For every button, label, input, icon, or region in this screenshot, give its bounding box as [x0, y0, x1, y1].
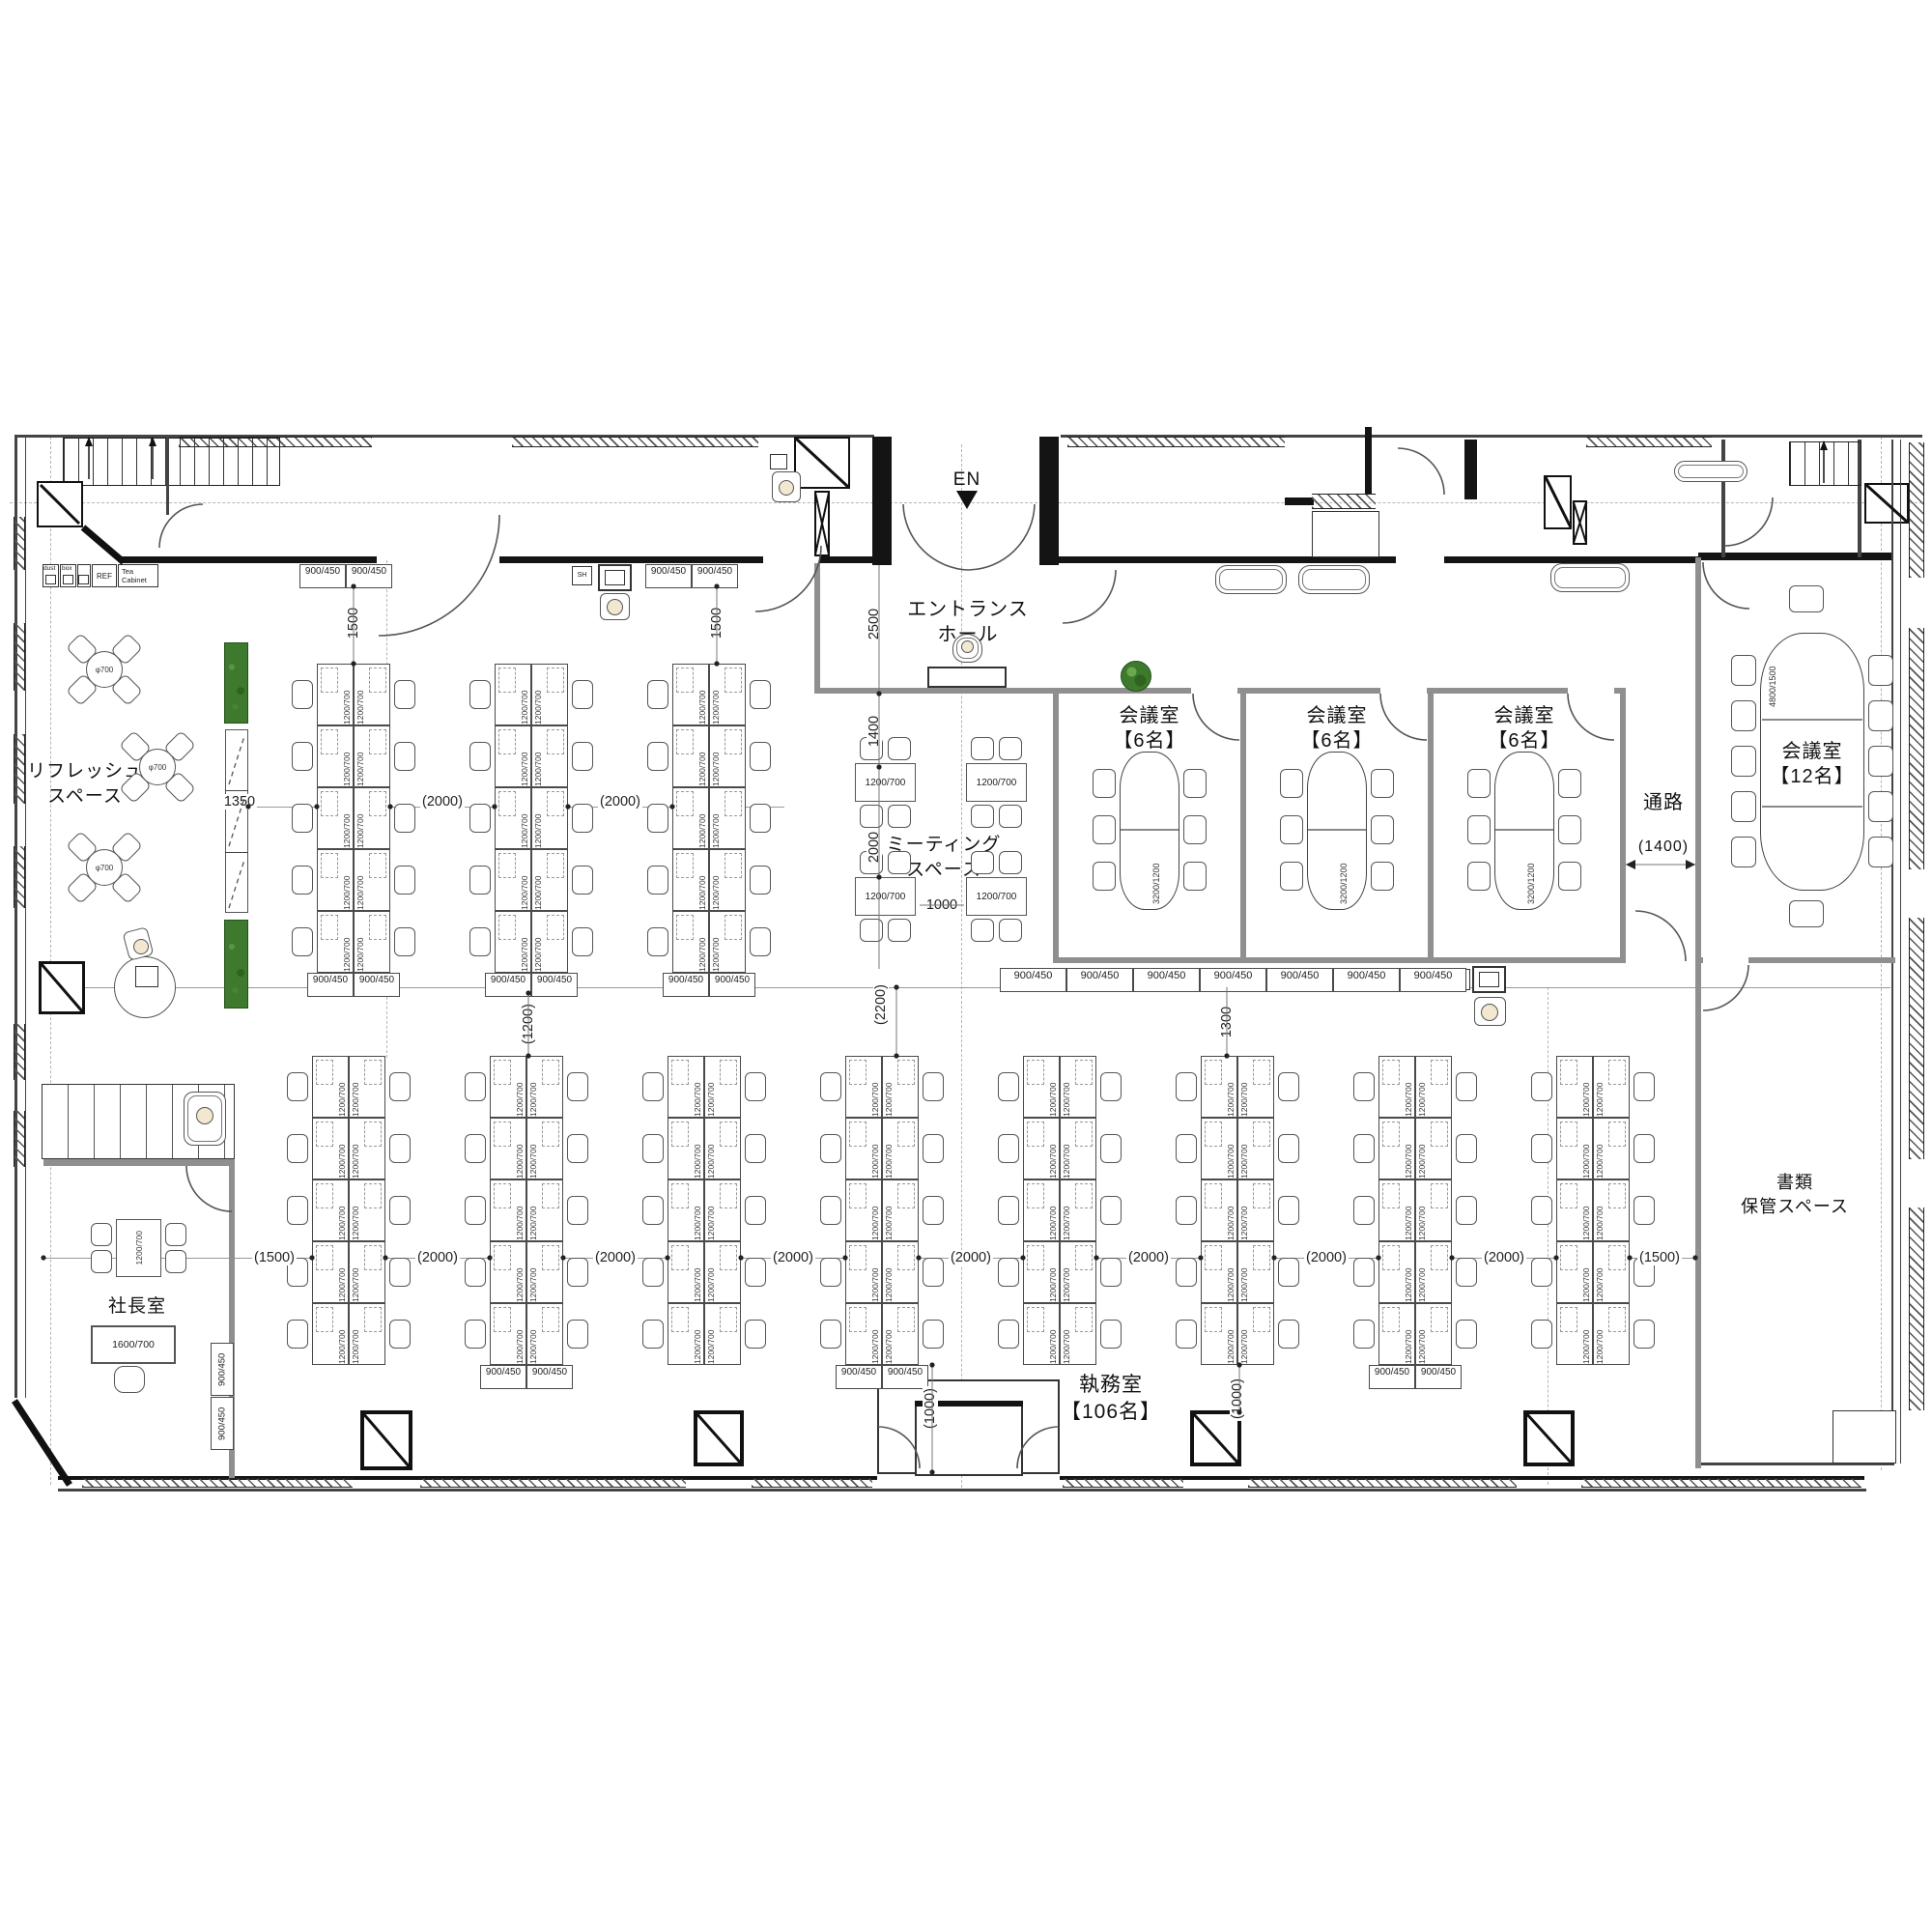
desk-size-label: 1200/700	[693, 1057, 702, 1117]
meeting-chair	[1280, 862, 1303, 891]
desk-equipment-zone	[321, 915, 338, 940]
dimension-label: (2000)	[593, 1250, 638, 1265]
office-chair	[1176, 1320, 1197, 1349]
office-desk: 1200/700	[709, 849, 746, 911]
refrigerator: REF	[92, 564, 117, 587]
office-desk: 1200/700	[1023, 1056, 1060, 1118]
president-meeting-table: 1200/700	[116, 1219, 161, 1277]
desk-equipment-zone	[720, 1183, 737, 1208]
office-desk: 1200/700	[672, 664, 709, 725]
office-chair	[465, 1258, 486, 1287]
meeting-chair	[1868, 746, 1893, 777]
dimension-label: 1350	[222, 794, 257, 810]
window-band-right-hatch	[1909, 442, 1924, 578]
office-chair	[923, 1196, 944, 1225]
office-chair	[820, 1072, 841, 1101]
desk-size-label: 1200/700	[520, 788, 529, 848]
desk-size-label: 1200/700	[870, 1057, 880, 1117]
meeting-room-wall	[1428, 688, 1434, 963]
desk-size-label: 1200/700	[342, 850, 352, 910]
office-desk: 1200/700	[349, 1179, 385, 1241]
meeting-chair	[888, 805, 911, 828]
office-desk: 1200/700	[1415, 1179, 1452, 1241]
office-chair	[750, 680, 771, 709]
desk-equipment-zone	[316, 1183, 333, 1208]
desk-equipment-zone	[897, 1060, 915, 1085]
office-desk: 1200/700	[1237, 1179, 1274, 1241]
office-desk: 1200/700	[312, 1056, 349, 1118]
desk-equipment-zone	[1205, 1122, 1222, 1147]
office-chair	[287, 1196, 308, 1225]
office-room-label: 執務室【106名】	[1029, 1372, 1193, 1426]
office-desk: 1200/700	[882, 1241, 919, 1303]
storage-cabinet: 900/450	[1400, 968, 1466, 992]
desk-equipment-zone	[1431, 1183, 1448, 1208]
desk-equipment-zone	[1431, 1245, 1448, 1270]
desk-size-label: 1200/700	[528, 1304, 538, 1364]
desk-size-label: 1200/700	[1404, 1057, 1413, 1117]
office-chair	[1531, 1258, 1552, 1287]
office-chair	[1353, 1134, 1375, 1163]
office-desk: 1200/700	[668, 1118, 704, 1179]
meeting-chair	[1789, 585, 1824, 612]
desk-equipment-zone	[494, 1245, 511, 1270]
desk-size-label: 1200/700	[706, 1119, 716, 1179]
office-chair	[820, 1134, 841, 1163]
office-desk: 1200/700	[354, 725, 390, 787]
office-desk: 1200/700	[668, 1303, 704, 1365]
desk-equipment-zone	[498, 668, 516, 693]
office-chair	[923, 1258, 944, 1287]
office-desk: 1200/700	[668, 1056, 704, 1118]
office-desk: 1200/700	[1593, 1303, 1630, 1365]
office-chair	[745, 1196, 766, 1225]
desk-equipment-zone	[1253, 1245, 1270, 1270]
office-chair	[1278, 1258, 1299, 1287]
desk-equipment-zone	[542, 1183, 559, 1208]
desk-size-label: 1200/700	[533, 665, 543, 724]
corridor-label: 通路	[1625, 790, 1702, 815]
office-desk: 1200/700	[845, 1303, 882, 1365]
office-desk: 1200/700	[495, 725, 531, 787]
desk-equipment-zone	[547, 915, 564, 940]
office-desk: 1200/700	[1593, 1179, 1630, 1241]
office-desk: 1200/700	[709, 787, 746, 849]
office-chair	[1278, 1320, 1299, 1349]
desk-equipment-zone	[897, 1245, 915, 1270]
office-chair	[465, 1134, 486, 1163]
desk-equipment-zone	[671, 1122, 689, 1147]
storage-cabinet: 900/450	[1333, 968, 1400, 992]
office-chair	[998, 1134, 1019, 1163]
office-desk: 1200/700	[354, 664, 390, 725]
window-band-bottom	[1248, 1478, 1517, 1488]
meeting-chair	[860, 805, 883, 828]
diagonal-corner-wall	[14, 1401, 70, 1485]
inner-wall-top	[499, 556, 763, 563]
desk-size-label: 1200/700	[884, 1242, 894, 1302]
desk-size-label: 1200/700	[1048, 1304, 1058, 1364]
desk-equipment-zone	[498, 729, 516, 754]
office-desk: 1200/700	[531, 849, 568, 911]
office-chair	[647, 927, 668, 956]
office-desk: 1200/700	[317, 787, 354, 849]
desk-size-label: 1200/700	[1239, 1180, 1249, 1240]
desk-size-label: 1200/700	[693, 1304, 702, 1364]
desk-equipment-zone	[724, 853, 742, 878]
office-chair	[642, 1320, 664, 1349]
office-chair	[1176, 1134, 1197, 1163]
meeting-rooms-bottom-wall	[1053, 957, 1626, 963]
president-room-label: 社長室	[79, 1294, 195, 1320]
office-chair	[998, 1072, 1019, 1101]
dimension-label: (2000)	[771, 1250, 815, 1265]
meeting-chair	[1731, 791, 1756, 822]
meeting-chair	[1093, 769, 1116, 798]
partition-panel-divider	[225, 790, 248, 791]
office-chair	[998, 1258, 1019, 1287]
entrance-hall-label: エントランスホール	[891, 597, 1045, 647]
office-desk: 1200/700	[1023, 1241, 1060, 1303]
office-chair	[567, 1072, 588, 1101]
desk-equipment-zone	[1027, 1122, 1044, 1147]
shaft-column	[814, 491, 830, 556]
desk-size-label: 1200/700	[697, 726, 707, 786]
office-desk: 1200/700	[490, 1303, 526, 1365]
desk-size-label: 1200/700	[533, 726, 543, 786]
desk-equipment-zone	[849, 1060, 867, 1085]
desk-size-label: 1200/700	[533, 788, 543, 848]
desk-size-label: 1200/700	[1581, 1119, 1591, 1179]
desk-equipment-zone	[321, 729, 338, 754]
desk-size-label: 1200/700	[1404, 1304, 1413, 1364]
wall-stub	[1464, 440, 1477, 499]
desk-equipment-zone	[1431, 1122, 1448, 1147]
office-desk: 1200/700	[1415, 1303, 1452, 1365]
desk-equipment-zone	[1253, 1307, 1270, 1332]
office-desk: 1200/700	[531, 787, 568, 849]
desk-size-label: 1200/700	[1048, 1119, 1058, 1179]
office-desk: 1200/700	[349, 1118, 385, 1179]
president-chair	[114, 1366, 145, 1393]
office-desk: 1200/700	[709, 911, 746, 973]
office-chair	[1634, 1072, 1655, 1101]
desk-size-label: 1200/700	[1048, 1242, 1058, 1302]
desk-size-label: 1200/700	[528, 1057, 538, 1117]
office-desk: 1200/700	[312, 1118, 349, 1179]
office-desk: 1200/700	[1060, 1303, 1096, 1365]
desk-size-label: 1200/700	[351, 1242, 360, 1302]
office-chair	[1353, 1072, 1375, 1101]
office-desk: 1200/700	[1201, 1241, 1237, 1303]
storage-cabinet: 900/450	[1066, 968, 1133, 992]
storage-cabinet: 900/450	[1000, 968, 1066, 992]
office-desk: 1200/700	[317, 911, 354, 973]
office-chair	[287, 1072, 308, 1101]
office-desk: 1200/700	[1378, 1056, 1415, 1118]
office-desk: 1200/700	[354, 911, 390, 973]
entrance-mark: EN	[933, 468, 1001, 493]
table-item	[135, 966, 158, 987]
office-desk: 1200/700	[526, 1118, 563, 1179]
storage-cabinet: 900/450	[346, 564, 392, 588]
storage-cabinet: 900/450	[531, 973, 578, 997]
desk-size-label: 1200/700	[1062, 1242, 1071, 1302]
meeting-chair	[1371, 862, 1394, 891]
dimension-label: (1000)	[923, 1386, 938, 1431]
desk-size-label: 1200/700	[520, 726, 529, 786]
office-desk: 1200/700	[1593, 1118, 1630, 1179]
office-desk: 1200/700	[526, 1056, 563, 1118]
office-chair	[1456, 1196, 1477, 1225]
desk-equipment-zone	[1205, 1060, 1222, 1085]
desk-size-label: 1200/700	[711, 726, 721, 786]
office-chair	[647, 866, 668, 895]
desk-equipment-zone	[720, 1122, 737, 1147]
window-band-bottom	[752, 1478, 872, 1488]
window-band-bottom	[420, 1478, 686, 1488]
meeting6-table-label: 3200/1200	[1151, 840, 1161, 904]
bench	[1550, 563, 1630, 592]
meeting-chair	[999, 919, 1022, 942]
meeting-chair	[971, 737, 994, 760]
office-desk: 1200/700	[704, 1056, 741, 1118]
office-chair	[745, 1258, 766, 1287]
copier-inner	[1479, 972, 1499, 987]
desk-equipment-zone	[1075, 1122, 1093, 1147]
desk-size-label: 1200/700	[1239, 1057, 1249, 1117]
office-desk: 1200/700	[845, 1056, 882, 1118]
meeting-chair	[1183, 815, 1207, 844]
office-chair	[647, 804, 668, 833]
storage-cabinet: 900/450	[1369, 1365, 1415, 1389]
desk-equipment-zone	[676, 668, 694, 693]
desk-size-label: 1200/700	[870, 1304, 880, 1364]
office-chair	[572, 927, 593, 956]
desk-size-label: 1200/700	[1226, 1304, 1236, 1364]
column-left	[39, 961, 85, 1014]
desk-equipment-zone	[1608, 1183, 1626, 1208]
office-chair	[647, 680, 668, 709]
meeting-chair	[1731, 746, 1756, 777]
meeting-chair	[1558, 769, 1581, 798]
desk-equipment-zone	[494, 1122, 511, 1147]
office-chair	[1634, 1134, 1655, 1163]
desk-equipment-zone	[547, 729, 564, 754]
office-chair	[1456, 1320, 1477, 1349]
storage-cabinet: 900/450	[836, 1365, 882, 1389]
tea-cabinet: TeaCabinet	[118, 564, 158, 587]
office-desk: 1200/700	[709, 725, 746, 787]
desk-size-label: 1200/700	[1417, 1180, 1427, 1240]
desk-size-label: 1200/700	[706, 1180, 716, 1240]
inner-wall-top	[819, 556, 874, 563]
office-chair	[923, 1134, 944, 1163]
elevator-shaft	[1864, 483, 1909, 524]
desk-size-label: 1200/700	[711, 912, 721, 972]
desk-size-label: 1200/700	[706, 1057, 716, 1117]
desk-size-label: 1200/700	[520, 665, 529, 724]
meeting-chair	[1280, 769, 1303, 798]
office-desk: 1200/700	[1060, 1241, 1096, 1303]
sh-cabinet: SH	[572, 566, 592, 585]
meeting-chair	[1093, 862, 1116, 891]
office-desk: 1200/700	[1556, 1118, 1593, 1179]
office-desk: 1200/700	[672, 787, 709, 849]
office-chair	[567, 1258, 588, 1287]
desk-size-label: 1200/700	[337, 1180, 347, 1240]
desk-size-label: 1200/700	[528, 1242, 538, 1302]
person-symbol	[196, 1107, 213, 1124]
meeting-rooms-top-wall	[1427, 688, 1568, 694]
office-desk: 1200/700	[531, 911, 568, 973]
office-chair	[469, 804, 491, 833]
desk-equipment-zone	[676, 791, 694, 816]
partition-panel-divider	[225, 852, 248, 853]
elevator-shaft	[37, 481, 83, 527]
meeting-room6-label: 会議室【6名】	[1072, 703, 1227, 753]
inner-wall-top	[121, 556, 377, 563]
office-desk: 1200/700	[672, 725, 709, 787]
desk-equipment-zone	[547, 853, 564, 878]
office-desk: 1200/700	[312, 1241, 349, 1303]
desk-size-label: 1200/700	[870, 1119, 880, 1179]
meeting-chair	[1183, 769, 1207, 798]
dimension-label: (1000)	[1230, 1377, 1245, 1421]
line-overlay	[0, 0, 1932, 1932]
window-band-left	[14, 517, 25, 570]
desk-size-label: 1200/700	[1239, 1304, 1249, 1364]
desk-equipment-zone	[1253, 1122, 1270, 1147]
person-symbol	[607, 599, 623, 615]
desk-size-label: 1200/700	[1048, 1057, 1058, 1117]
desk-equipment-zone	[369, 791, 386, 816]
desk-equipment-zone	[1027, 1060, 1044, 1085]
meeting6-table	[1120, 752, 1179, 910]
desk-equipment-zone	[542, 1060, 559, 1085]
desk-equipment-zone	[671, 1307, 689, 1332]
desk-equipment-zone	[364, 1060, 382, 1085]
meeting-chair	[971, 805, 994, 828]
desk-size-label: 1200/700	[528, 1119, 538, 1179]
office-desk: 1200/700	[882, 1056, 919, 1118]
office-desk: 1200/700	[1237, 1056, 1274, 1118]
office-desk: 1200/700	[490, 1056, 526, 1118]
office-chair	[469, 927, 491, 956]
desk-size-label: 1200/700	[515, 1242, 525, 1302]
desk-size-label: 1200/700	[1404, 1119, 1413, 1179]
desk-equipment-zone	[369, 729, 386, 754]
window-band-left	[14, 623, 25, 691]
office-desk: 1200/700	[1023, 1303, 1060, 1365]
office-desk: 1200/700	[349, 1056, 385, 1118]
desk-size-label: 1200/700	[1595, 1057, 1605, 1117]
desk-size-label: 1200/700	[351, 1180, 360, 1240]
desk-size-label: 1200/700	[1581, 1304, 1591, 1364]
reception-desk	[927, 667, 1007, 688]
corridor-dim-label: (1400)	[1625, 835, 1702, 860]
office-chair	[642, 1072, 664, 1101]
office-desk: 1200/700	[490, 1118, 526, 1179]
desk-size-label: 1200/700	[706, 1242, 716, 1302]
storage-cabinet: 900/450	[882, 1365, 928, 1389]
outer-wall-right-inner	[1900, 440, 1901, 1463]
corridor-right-wall	[1695, 557, 1701, 963]
office-chair	[1176, 1258, 1197, 1287]
office-desk: 1200/700	[490, 1241, 526, 1303]
desk-size-label: 1200/700	[533, 850, 543, 910]
dimension-label: (2000)	[415, 1250, 460, 1265]
dim-arrow	[1626, 860, 1635, 869]
desk-size-label: 1200/700	[870, 1180, 880, 1240]
meeting6-table-label: 3200/1200	[1526, 840, 1536, 904]
desk-equipment-zone	[720, 1060, 737, 1085]
desk-size-label: 1200/700	[884, 1119, 894, 1179]
desk-equipment-zone	[1382, 1122, 1400, 1147]
bench	[1215, 565, 1287, 594]
storage-cabinet: 900/450	[709, 973, 755, 997]
desk-equipment-zone	[1431, 1060, 1448, 1085]
desk-equipment-zone	[1075, 1307, 1093, 1332]
meeting6-table	[1307, 752, 1367, 910]
chair	[91, 1250, 112, 1273]
desk-equipment-zone	[849, 1245, 867, 1270]
office-desk: 1200/700	[1415, 1056, 1452, 1118]
door-arc	[1398, 448, 1444, 495]
door-arc	[1703, 562, 1749, 609]
office-desk: 1200/700	[312, 1303, 349, 1365]
office-desk: 1200/700	[704, 1303, 741, 1365]
meeting-space-table: 1200/700	[855, 877, 916, 916]
meeting-room-wall	[1053, 688, 1059, 963]
inner-wall-top	[1444, 556, 1698, 563]
office-chair	[572, 866, 593, 895]
office-desk: 1200/700	[526, 1241, 563, 1303]
office-chair	[642, 1134, 664, 1163]
desk-equipment-zone	[542, 1122, 559, 1147]
person-symbol	[1481, 1004, 1498, 1021]
office-chair	[469, 866, 491, 895]
chair	[165, 1223, 186, 1246]
desk-size-label: 1200/700	[515, 1119, 525, 1179]
office-desk: 1200/700	[354, 849, 390, 911]
meeting-chair	[1789, 900, 1824, 927]
office-chair	[647, 742, 668, 771]
pillar	[694, 1410, 744, 1466]
office-desk: 1200/700	[317, 849, 354, 911]
office-chair	[1456, 1258, 1477, 1287]
office-desk: 1200/700	[672, 849, 709, 911]
office-chair	[292, 927, 313, 956]
office-chair	[750, 927, 771, 956]
desk-equipment-zone	[498, 853, 516, 878]
desk-equipment-zone	[1560, 1183, 1577, 1208]
office-desk: 1200/700	[312, 1179, 349, 1241]
president-desk: 1600/700	[91, 1325, 176, 1364]
desk-size-label: 1200/700	[515, 1180, 525, 1240]
desk-equipment-zone	[316, 1245, 333, 1270]
meeting-chair	[1371, 815, 1394, 844]
desk-equipment-zone	[498, 791, 516, 816]
president-top-wall	[43, 1159, 235, 1166]
desk-size-label: 1200/700	[355, 726, 365, 786]
desk-size-label: 1200/700	[1226, 1180, 1236, 1240]
desk-equipment-zone	[364, 1245, 382, 1270]
office-chair	[642, 1258, 664, 1287]
desk-size-label: 1200/700	[706, 1304, 716, 1364]
meeting-chair	[1093, 815, 1116, 844]
office-chair	[572, 742, 593, 771]
